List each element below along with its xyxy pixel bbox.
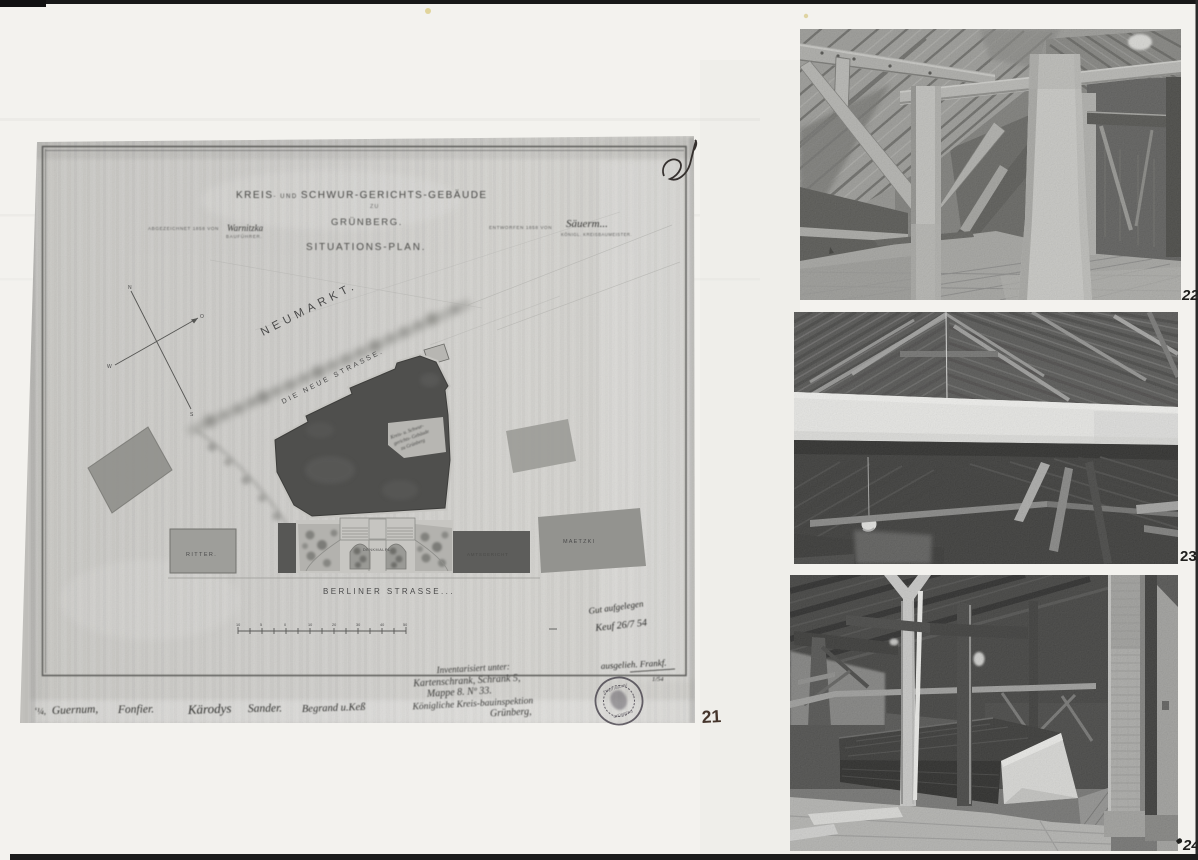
svg-text:BAUFÜHRER.: BAUFÜHRER. [226,234,263,239]
svg-text:20: 20 [332,623,336,627]
svg-text:Begrand u.Keß: Begrand u.Keß [302,702,367,715]
svg-text:1/54: 1/54 [652,676,664,683]
svg-text:Grünberg,: Grünberg, [490,706,532,719]
svg-text:24: 24 [1182,837,1198,854]
svg-text:ABGEZEICHNET 1858 VON: ABGEZEICHNET 1858 VON [148,226,219,231]
svg-text:SITUATIONS-PLAN.: SITUATIONS-PLAN. [306,242,426,253]
svg-text:50: 50 [403,623,407,627]
svg-text:Guernum,: Guernum, [52,703,99,717]
svg-text:40: 40 [380,623,384,627]
svg-text:O: O [200,314,204,320]
svg-text:10: 10 [236,623,240,627]
svg-text:MAETZKI: MAETZKI [563,539,595,545]
svg-text:N: N [128,285,132,291]
svg-text:Warnitzka: Warnitzka [227,223,264,233]
svg-text:Fonfier.: Fonfier. [117,703,154,716]
svg-text:‘¼,: ‘¼, [34,706,46,716]
svg-text:GRÜNBERG.: GRÜNBERG. [331,217,403,228]
svg-text:AMTSGERICHT: AMTSGERICHT [467,552,509,557]
svg-text:RITTER.: RITTER. [186,552,217,558]
svg-text:ENTWORFEN 1858 VON: ENTWORFEN 1858 VON [489,225,552,230]
svg-text:ZU: ZU [370,204,379,210]
svg-text:23: 23 [1180,548,1197,565]
svg-text:5: 5 [260,623,262,627]
svg-text:DENKMALPL.: DENKMALPL. [363,548,392,552]
svg-text:Sander.: Sander. [248,702,282,715]
svg-text:0: 0 [284,623,286,627]
svg-text:Säuerm...: Säuerm... [566,218,608,230]
svg-text:BERLINER STRASSE...: BERLINER STRASSE... [323,587,455,596]
svg-text:Kärodys: Kärodys [187,700,232,717]
svg-text:21: 21 [701,706,722,727]
svg-text:KÖNIGL. KREISBAUMEISTER.: KÖNIGL. KREISBAUMEISTER. [561,232,632,237]
svg-text:22: 22 [1181,287,1198,304]
svg-text:10: 10 [308,623,312,627]
svg-text:W: W [107,364,112,370]
svg-text:30: 30 [356,623,360,627]
